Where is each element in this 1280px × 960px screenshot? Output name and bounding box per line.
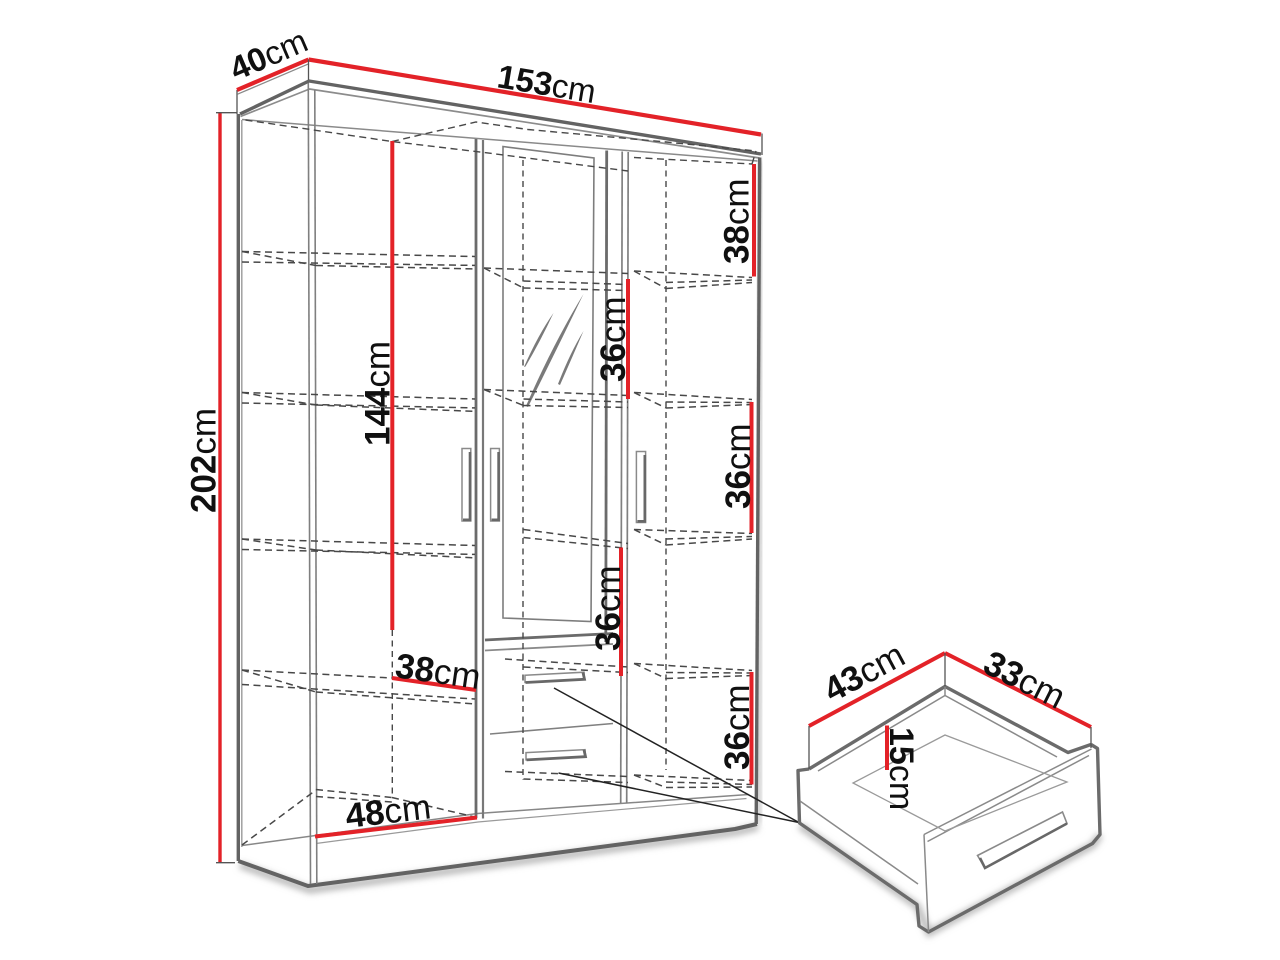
- svg-text:36cm: 36cm: [589, 565, 628, 651]
- svg-text:36cm: 36cm: [594, 296, 633, 382]
- svg-text:38cm: 38cm: [718, 178, 757, 264]
- svg-text:15cm: 15cm: [882, 727, 920, 810]
- svg-text:36cm: 36cm: [718, 684, 757, 770]
- svg-text:202cm: 202cm: [185, 408, 224, 513]
- svg-text:36cm: 36cm: [719, 423, 758, 509]
- svg-text:144cm: 144cm: [359, 341, 398, 446]
